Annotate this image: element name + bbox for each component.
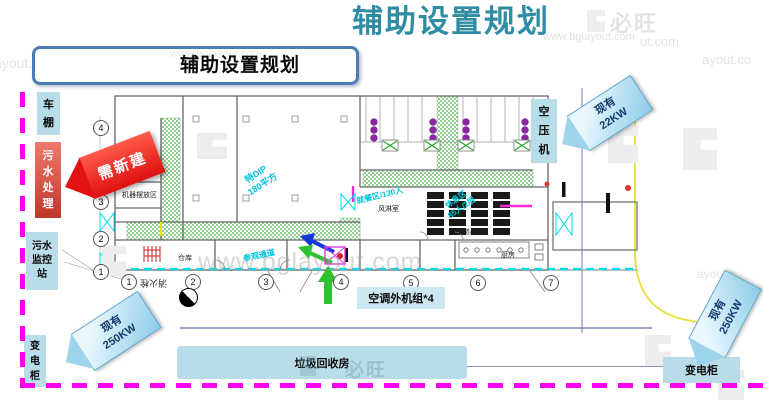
label-ac-outdoor-units: 空调外机组*4 xyxy=(357,287,445,309)
url-watermark-top: www.bglayout.com xyxy=(543,31,635,43)
axis-bottom-4: 4 xyxy=(333,274,349,290)
plan-label-fire-hydrant: 消火栓 xyxy=(140,277,167,290)
brand-watermark: 必旺 xyxy=(610,6,658,38)
logo-block-3 xyxy=(683,128,717,170)
axis-left-2: 2 xyxy=(93,231,109,247)
garbage-connector-line xyxy=(467,366,663,367)
axis-bottom-7: 7 xyxy=(543,275,559,291)
url-watermark-r1: ut.com xyxy=(640,34,679,49)
red-hatch-symbol xyxy=(144,246,160,262)
axis-bottom-3: 3 xyxy=(258,274,274,290)
plan-label-machine-area: 机器摆放区 xyxy=(122,190,157,200)
plan-label-corridor: 通道/1.5m xyxy=(458,227,485,236)
brand-watermark-garbage: 必旺 xyxy=(345,355,387,382)
plan-label-kitchen: 厨房 xyxy=(501,250,515,260)
url-watermark-center: www.bglayout.com xyxy=(198,248,422,277)
orientation-symbol xyxy=(179,288,198,307)
page-title: 辅助设置规划 xyxy=(352,0,550,41)
axis-left-1: 1 xyxy=(93,264,109,280)
label-garbage-room: 垃圾回收房 xyxy=(177,346,467,379)
boundary-dashed-bottom xyxy=(20,383,763,388)
label-carport: 车棚 xyxy=(37,92,60,135)
subtitle-text: 辅助设置规划 xyxy=(180,50,300,77)
brand-logo-icon xyxy=(587,10,605,32)
plan-label-air-shower: 风淋室 xyxy=(378,206,386,214)
label-sewage-treatment: 污水处理 xyxy=(35,142,61,218)
boundary-dashed-left xyxy=(20,92,25,388)
label-sewage-monitor: 污水监控站 xyxy=(26,232,58,290)
plan-label-warehouse: 仓库 xyxy=(178,253,192,263)
green-corridors xyxy=(127,96,533,240)
label-power-cabinet-left: 变电柜 xyxy=(24,335,46,387)
url-watermark-r2: ayout.co xyxy=(702,52,751,67)
axis-left-4: 4 xyxy=(93,120,109,136)
axis-bottom-1: 1 xyxy=(121,274,137,290)
axis-bottom-6: 6 xyxy=(470,275,486,291)
